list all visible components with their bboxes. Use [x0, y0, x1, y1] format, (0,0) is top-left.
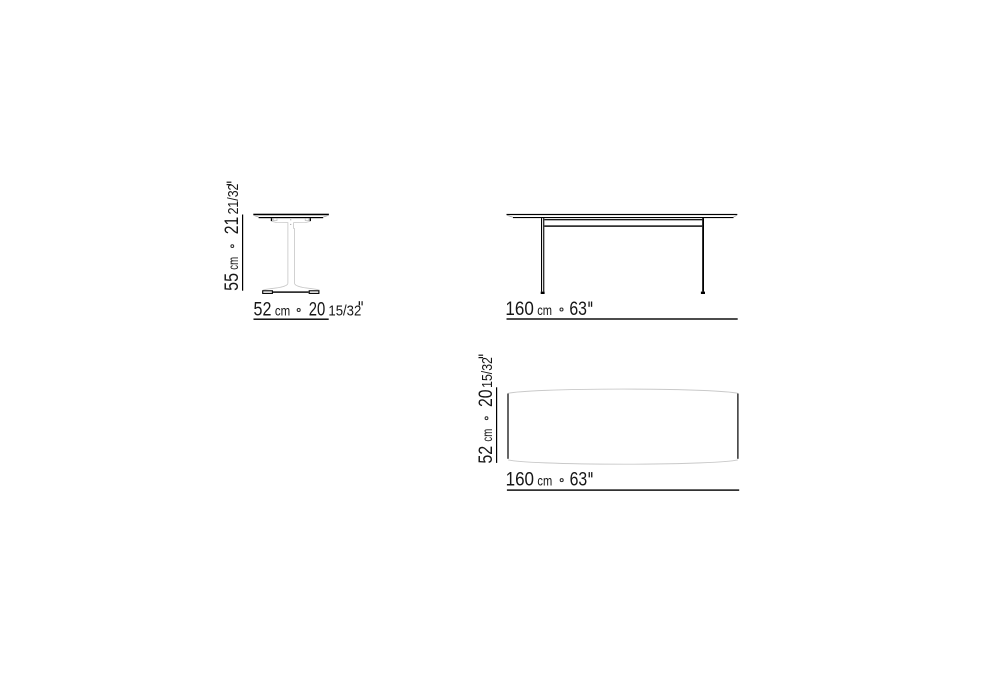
svg-text:63: 63 [570, 470, 588, 491]
svg-text:160: 160 [506, 470, 534, 491]
svg-text:52: 52 [254, 300, 272, 321]
svg-text:cm: cm [226, 257, 241, 270]
svg-text:63: 63 [569, 299, 587, 320]
svg-text:55: 55 [222, 273, 243, 291]
svg-text:cm: cm [275, 304, 290, 319]
svg-text:160: 160 [505, 299, 533, 320]
svg-text:cm: cm [480, 429, 495, 442]
svg-text:20: 20 [309, 300, 326, 321]
svg-text:21: 21 [222, 217, 243, 235]
svg-text:52: 52 [476, 446, 497, 464]
svg-text:20: 20 [476, 390, 497, 408]
svg-text:cm: cm [537, 303, 552, 318]
svg-text:21/32: 21/32 [225, 184, 242, 215]
svg-text:cm: cm [537, 474, 552, 489]
svg-text:15/32: 15/32 [479, 357, 496, 388]
svg-text:15/32: 15/32 [328, 303, 361, 320]
